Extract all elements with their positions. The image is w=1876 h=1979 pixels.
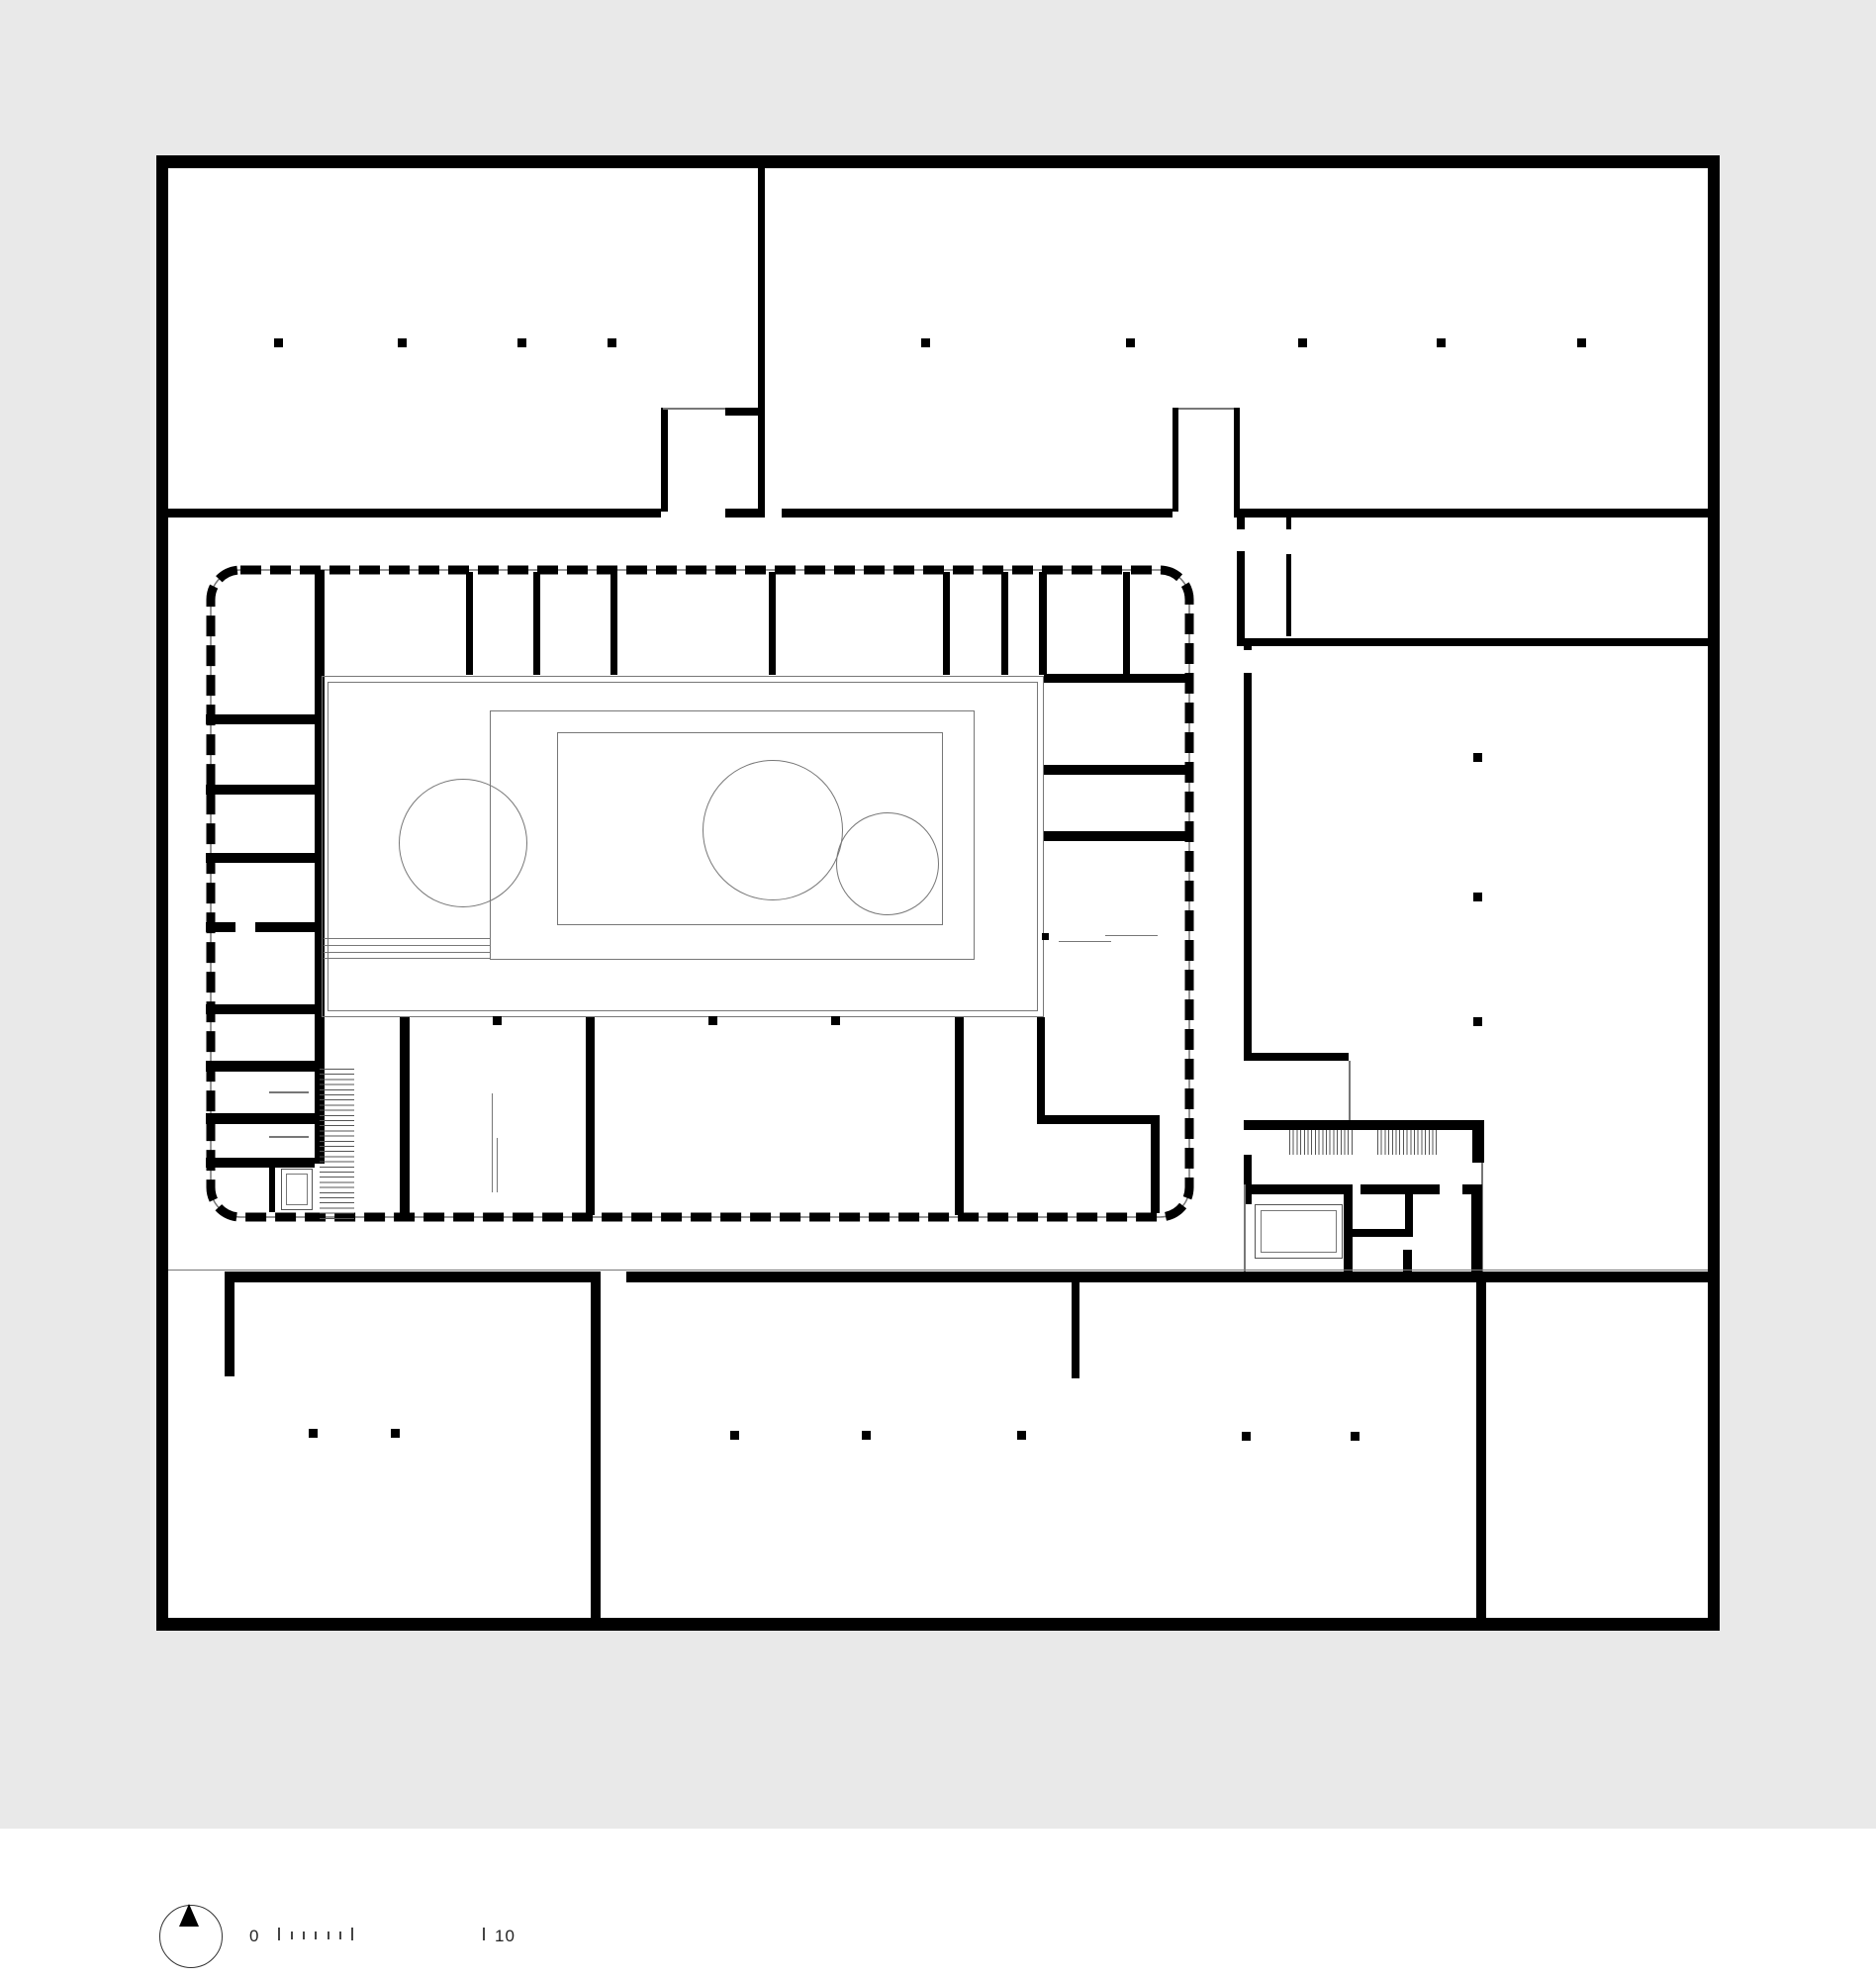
leader-line [1059,941,1111,942]
wall-segment [400,1017,410,1215]
column-dot [391,1429,400,1438]
stair-hatch [320,1069,354,1220]
wall-segment [1151,1115,1160,1213]
wall-segment [206,922,235,932]
scale-zero-label: 0 [249,1927,259,1946]
partition-line [497,1138,498,1192]
partition-line [168,1270,1708,1271]
scale-ten-label: 10 [495,1927,516,1946]
wall-segment [206,853,315,863]
wall-segment [1072,1282,1079,1378]
floor-plan-canvas: 0 10 [0,0,1876,1979]
wall-segment [610,572,617,675]
north-arrow-icon [179,1904,199,1927]
scale-tick-minor [328,1932,329,1939]
wall-segment [206,785,315,795]
wall-segment [1462,1184,1471,1194]
step-line [324,952,490,953]
wall-segment [206,714,315,724]
scale-tick-minor [315,1932,317,1939]
partition-line [269,1136,309,1138]
column-dot [708,1016,717,1025]
wall-segment [206,1158,315,1168]
wall-segment [943,572,950,675]
partition-line [1244,1184,1246,1272]
wall-segment [1360,1184,1440,1194]
column-dot [831,1016,840,1025]
scale-tick-major [278,1928,280,1940]
wall-segment [586,1017,595,1215]
wall-segment [1250,1184,1344,1194]
wall-segment [533,572,540,675]
wall-segment [206,1113,315,1124]
column-dot [493,1016,502,1025]
step-line [324,958,490,959]
wall-segment [1349,1229,1413,1237]
elevator-car [1261,1210,1337,1253]
wall-segment [225,1282,234,1376]
wall-segment [591,1282,601,1618]
scale-tick-minor [291,1932,293,1939]
scale-tick-major [351,1928,353,1940]
scale-tick-minor [303,1932,305,1939]
wall-segment [1044,765,1187,775]
circle-motif-medium [399,779,527,907]
elevator-car [286,1174,308,1205]
wall-segment [955,1017,964,1215]
partition-line [492,1093,493,1192]
column-dot [1017,1431,1026,1440]
level-marker [1042,933,1049,940]
scale-tick-minor [339,1932,341,1939]
partition-line [269,1091,309,1093]
wall-segment [1123,572,1130,675]
wall-segment [1037,1017,1045,1116]
wall-segment [1471,1184,1482,1282]
wall-segment [466,572,473,675]
column-dot [862,1431,871,1440]
wall-segment [269,1163,275,1212]
scale-tick-major [483,1928,485,1940]
wall-segment [1001,572,1008,675]
wall-segment [1476,1282,1486,1618]
column-dot [1242,1432,1251,1441]
step-line [324,938,490,939]
wall-segment [626,1272,1708,1282]
leader-line [1105,935,1158,936]
wall-segment [1044,674,1187,683]
wall-segment [206,1061,317,1072]
circle-motif-small [836,812,939,915]
wall-segment [1044,831,1187,841]
wall-segment [255,922,315,932]
wall-segment [206,1004,315,1014]
column-dot [1351,1432,1360,1441]
wall-segment [769,572,776,675]
circle-motif-large [703,760,843,900]
wall-segment [1039,572,1047,675]
wall-segment [1037,1115,1156,1124]
wall-segment [225,1272,601,1282]
column-dot [730,1431,739,1440]
column-dot [309,1429,318,1438]
step-line [324,945,490,946]
